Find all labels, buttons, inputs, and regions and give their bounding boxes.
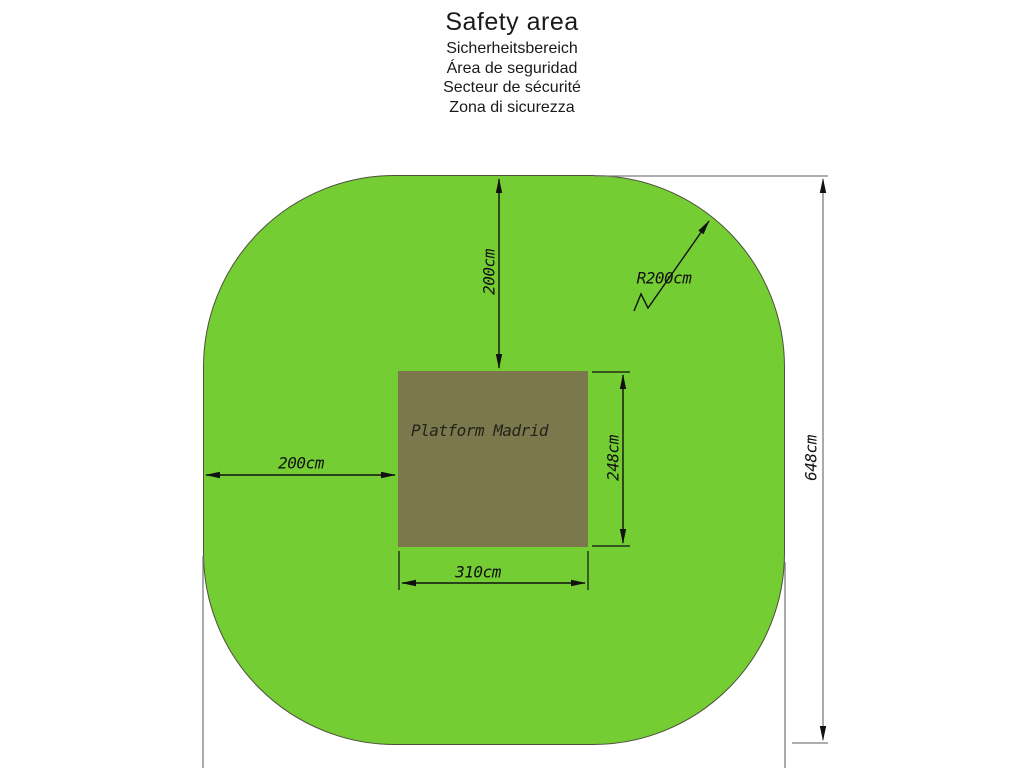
platform-rectangle (398, 371, 588, 547)
dim-label-platform-width: 310cm (455, 563, 501, 582)
title-translation-de: Sicherheitsbereich (0, 39, 1024, 59)
title-translation-es: Área de seguridad (0, 59, 1024, 79)
dim-label-corner-radius: R200cm (637, 269, 692, 288)
dim-label-left-clearance: 200cm (278, 454, 324, 473)
platform-name-label: Platform Madrid (411, 421, 548, 440)
drawing-title: Safety area (0, 8, 1024, 36)
title-translation-fr: Secteur de sécurité (0, 78, 1024, 98)
dim-label-overall-height: 648cm (802, 435, 821, 481)
safety-area-drawing: Safety area Sicherheitsbereich Área de s… (0, 0, 1024, 768)
title-translation-it: Zona di sicurezza (0, 98, 1024, 118)
dim-label-top-clearance: 200cm (480, 249, 499, 295)
title-block: Safety area Sicherheitsbereich Área de s… (0, 8, 1024, 117)
dim-label-platform-depth: 248cm (604, 435, 623, 481)
